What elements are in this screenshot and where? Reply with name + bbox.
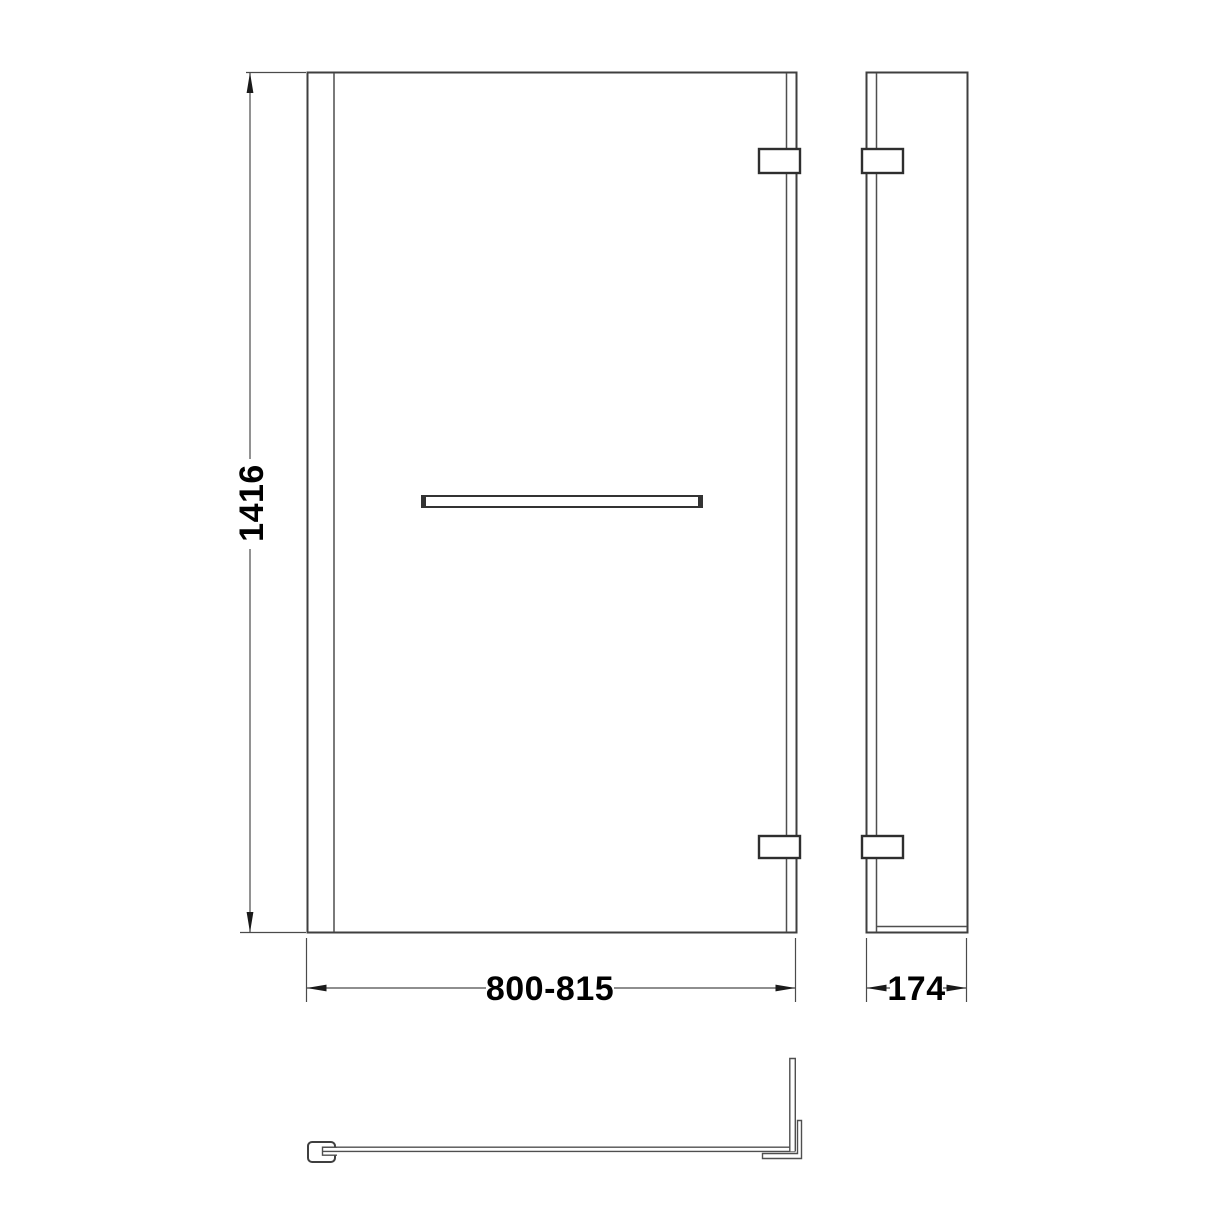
side-view [862, 73, 968, 933]
depth-dimension: 174 [867, 938, 967, 1008]
side-hinge-bracket-bottom [862, 836, 903, 858]
technical-drawing-page: 1416 800-815 174 [0, 0, 1214, 1214]
front-view [308, 73, 801, 933]
height-label: 1416 [233, 464, 271, 542]
width-arrow-right [776, 985, 796, 992]
side-panel-outline [867, 73, 968, 933]
width-label: 800-815 [486, 970, 614, 1008]
depth-arrow-left [867, 985, 887, 992]
towel-bar [422, 496, 702, 507]
hinge-bracket-top [759, 149, 800, 173]
bath-screen-drawing: 1416 800-815 174 [0, 0, 1214, 1214]
side-hinge-bracket-top [862, 149, 903, 173]
width-arrow-left [307, 985, 327, 992]
width-dimension: 800-815 [307, 938, 796, 1008]
depth-arrow-right [947, 985, 967, 992]
height-arrow-down [247, 912, 254, 933]
height-dimension: 1416 [230, 73, 306, 933]
height-arrow-up [247, 73, 254, 94]
plan-return-panel [790, 1059, 796, 1152]
hinge-bracket-bottom [759, 836, 800, 858]
plan-view [308, 1059, 802, 1163]
depth-label: 174 [887, 970, 945, 1008]
